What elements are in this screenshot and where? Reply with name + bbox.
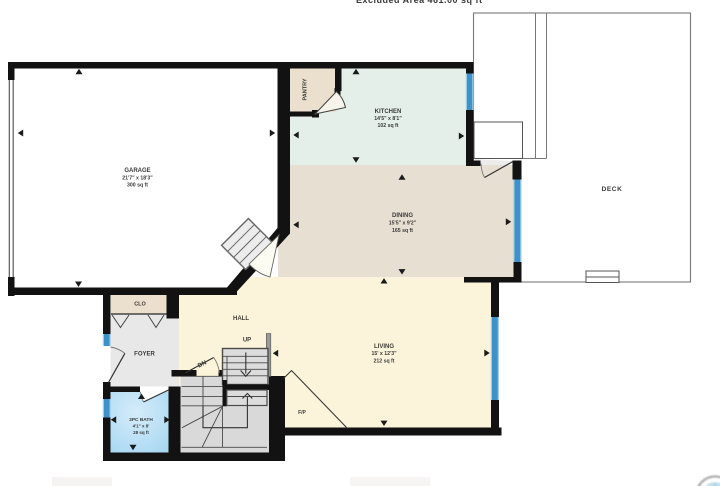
svg-text:UP: UP xyxy=(243,338,251,344)
svg-text:PANTRY: PANTRY xyxy=(303,78,309,100)
svg-text:FOYER: FOYER xyxy=(134,352,155,358)
svg-text:GARAGE: GARAGE xyxy=(124,168,150,174)
svg-text:15' x 12'3": 15' x 12'3" xyxy=(371,351,397,357)
svg-text:14'5" x 8'1": 14'5" x 8'1" xyxy=(374,116,402,122)
svg-text:3PC BATH: 3PC BATH xyxy=(129,417,153,423)
svg-text:KITCHEN: KITCHEN xyxy=(375,109,402,115)
svg-text:28 sq ft: 28 sq ft xyxy=(133,430,149,435)
svg-text:CLO: CLO xyxy=(134,302,146,308)
svg-text:165 sq ft: 165 sq ft xyxy=(392,228,413,234)
svg-text:21'7" x 18'3": 21'7" x 18'3" xyxy=(122,176,153,182)
svg-text:HALL: HALL xyxy=(233,316,249,322)
svg-text:F/P: F/P xyxy=(298,410,306,416)
svg-text:300 sq ft: 300 sq ft xyxy=(127,183,148,189)
svg-text:LIVING: LIVING xyxy=(374,344,394,350)
svg-text:DECK: DECK xyxy=(602,186,623,193)
svg-text:102 sq ft: 102 sq ft xyxy=(377,123,398,129)
svg-text:4'1" x 8': 4'1" x 8' xyxy=(133,424,150,429)
svg-text:15'5" x 9'2": 15'5" x 9'2" xyxy=(389,221,417,227)
svg-text:DINING: DINING xyxy=(392,213,413,219)
svg-text:212 sq ft: 212 sq ft xyxy=(373,359,394,365)
svg-text:Excluded Area 461.00 sq ft: Excluded Area 461.00 sq ft xyxy=(356,0,482,5)
